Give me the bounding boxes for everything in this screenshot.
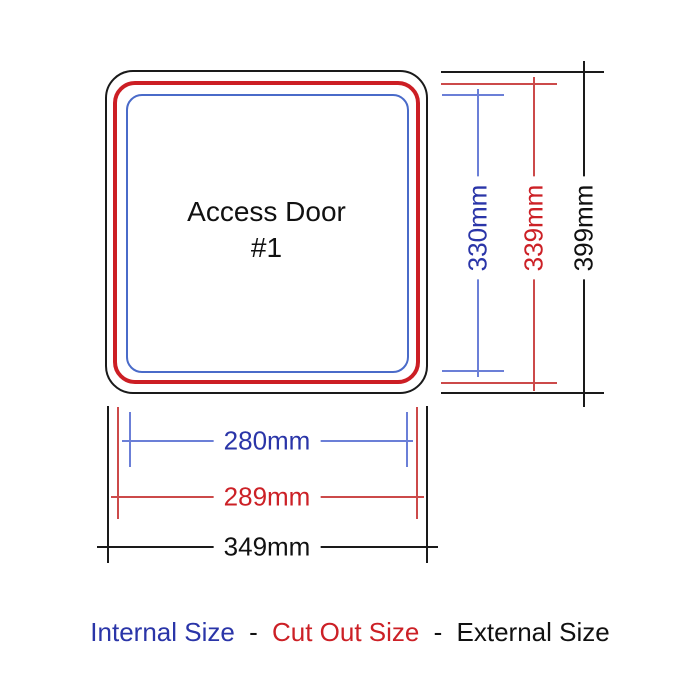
- dim-width-external-extension-left: [107, 406, 109, 563]
- legend-separator-1: -: [249, 617, 258, 647]
- dim-height-internal-label: 330mm: [462, 177, 495, 280]
- dim-height-cutout-tick-bottom: [441, 382, 557, 384]
- dim-height-cutout-tick-top: [441, 83, 557, 85]
- legend-external-label: External Size: [457, 617, 610, 647]
- dim-height-external-label: 399mm: [568, 177, 601, 280]
- door-title: Access Door #1: [105, 194, 428, 266]
- dim-width-internal-label: 280mm: [214, 425, 321, 458]
- dim-height-internal-tick-top: [442, 94, 504, 96]
- dim-height-internal-tick-bottom: [442, 370, 504, 372]
- door-title-line1: Access Door: [105, 194, 428, 230]
- dim-width-external-label: 349mm: [214, 531, 321, 564]
- access-door-diagram: Access Door #1 330mm 339mm 399mm 280mm 2…: [0, 0, 700, 700]
- dim-height-cutout-label: 339mm: [518, 177, 551, 280]
- dim-height-external-tick-top: [441, 71, 604, 73]
- dim-width-external-extension-right: [426, 406, 428, 563]
- dim-height-external-tick-bottom: [441, 392, 604, 394]
- legend-internal-label: Internal Size: [90, 617, 235, 647]
- dim-width-cutout-extension-right: [416, 407, 418, 519]
- legend-cut-out-label: Cut Out Size: [272, 617, 419, 647]
- legend-separator-2: -: [434, 617, 443, 647]
- dim-width-cutout-label: 289mm: [214, 481, 321, 514]
- door-title-line2: #1: [105, 230, 428, 266]
- legend: Internal Size - Cut Out Size - External …: [0, 617, 700, 648]
- dim-width-cutout-extension-left: [117, 407, 119, 519]
